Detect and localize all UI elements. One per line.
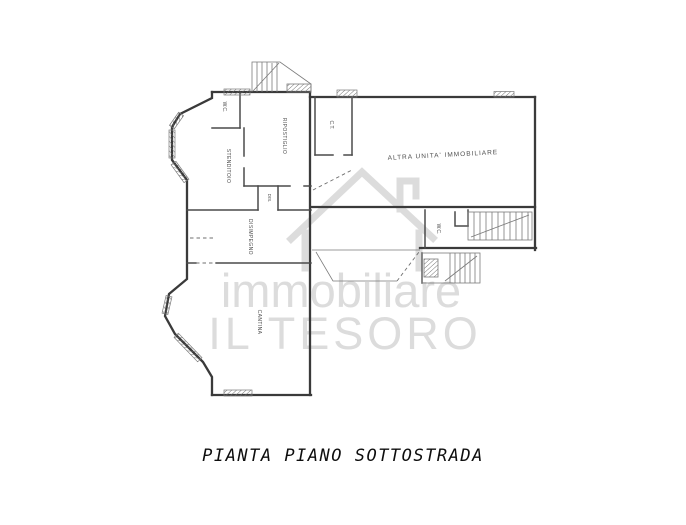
room-label-ct: C.T. <box>328 121 334 130</box>
room-label-altra-unita: ALTRA UNITA' IMMOBILIARE <box>388 149 499 162</box>
inner-wall-lines <box>187 92 468 283</box>
detail-lines <box>252 62 532 283</box>
room-label-dis: DIS. <box>267 194 272 203</box>
window-hatch <box>171 161 189 182</box>
plan-caption: PIANTA PIANO SOTTOSTRADA <box>0 446 686 466</box>
room-label-cantina: CANTINA <box>256 310 262 335</box>
window-hatch <box>162 296 172 315</box>
window-hatch <box>174 333 202 362</box>
watermark: immobiliare IL TESORO <box>208 172 482 359</box>
staircase-upper <box>252 62 311 92</box>
room-label-disimpegno: DISIMPEGNO <box>247 219 253 255</box>
room-label-stenditoio: STENDITOIO <box>225 149 231 183</box>
room-label-wc-right: W.C. <box>435 224 441 235</box>
room-label-wc-left: W.C. <box>221 102 227 113</box>
window-hatch <box>494 92 514 98</box>
window-hatch <box>224 390 252 396</box>
window-hatch <box>169 130 175 158</box>
staircase-right <box>468 212 532 240</box>
room-label-ripostiglio: RIPOSTIGLIO <box>281 118 287 154</box>
watermark-brand-bottom: IL TESORO <box>208 308 482 359</box>
window-hatch <box>169 112 183 129</box>
window-hatch <box>224 89 250 95</box>
house-icon <box>291 172 433 268</box>
window-hatch <box>337 90 357 97</box>
floorplan-page: immobiliare IL TESORO <box>0 0 686 525</box>
